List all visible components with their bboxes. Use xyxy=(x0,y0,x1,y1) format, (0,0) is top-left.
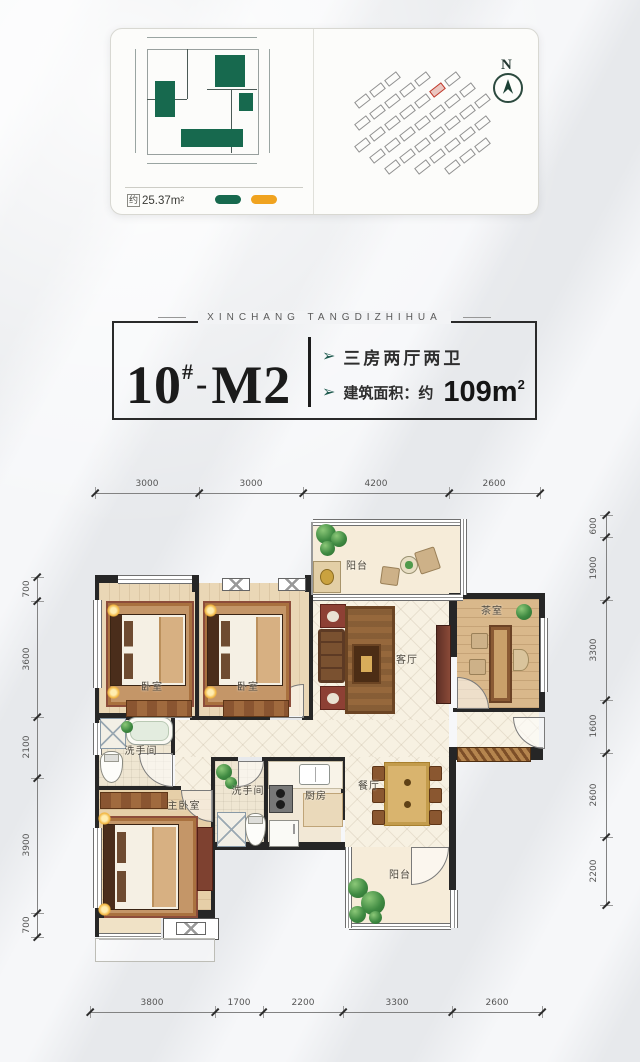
site-building xyxy=(354,137,371,153)
arrow-icon: ➢ xyxy=(322,385,335,401)
bench xyxy=(197,827,213,891)
label-bedroom-1: 卧室 xyxy=(141,683,163,693)
window xyxy=(93,600,102,688)
site-building xyxy=(459,148,476,164)
label-living: 客厅 xyxy=(396,656,418,666)
side-table xyxy=(320,604,346,628)
site-building xyxy=(399,126,416,142)
dim-left-3: 3900 xyxy=(22,834,32,857)
area-number: 109m xyxy=(443,376,517,408)
site-building xyxy=(414,159,431,175)
site-building xyxy=(384,159,401,175)
unit-dash: - xyxy=(196,366,208,403)
wall xyxy=(215,757,238,761)
tv-cabinet xyxy=(436,625,451,704)
site-building-highlighted xyxy=(429,82,446,98)
unit-title: 10#-M2 xyxy=(126,337,291,420)
dim-line-bottom xyxy=(90,1012,542,1013)
site-building xyxy=(459,126,476,142)
wardrobe xyxy=(126,700,192,717)
arrow-icon: ➢ xyxy=(322,349,335,365)
plant xyxy=(320,541,335,556)
mini-wall xyxy=(207,89,257,90)
dim-bottom-4: 2600 xyxy=(486,998,509,1008)
dim-top-0: 3000 xyxy=(136,479,159,489)
dim-top-1: 3000 xyxy=(240,479,263,489)
window xyxy=(460,519,467,595)
bathtub xyxy=(126,717,173,745)
site-building xyxy=(414,71,431,87)
site-building xyxy=(414,93,431,109)
entry-beam xyxy=(457,747,531,762)
mini-plan-unit-block xyxy=(239,93,253,111)
dining-chair xyxy=(429,766,442,781)
site-building xyxy=(429,104,446,120)
site-building xyxy=(414,115,431,131)
chair xyxy=(469,659,486,675)
stove xyxy=(269,785,293,813)
dim-bottom-1: 1700 xyxy=(228,998,251,1008)
dim-right-1: 1900 xyxy=(589,557,599,580)
site-building xyxy=(369,126,386,142)
card-divider xyxy=(313,29,314,214)
dim-right-2: 3300 xyxy=(589,639,599,662)
fridge xyxy=(269,820,299,847)
mini-dim-line xyxy=(147,163,257,164)
lamp xyxy=(204,686,217,699)
lamp xyxy=(98,812,111,825)
feature-rooms: 三房两厅两卫 xyxy=(343,344,463,369)
unit-model: M2 xyxy=(211,355,291,415)
window xyxy=(349,923,451,930)
lamp xyxy=(98,903,111,916)
brand-text: XINCHANG TANGDIZHIHUA xyxy=(198,311,451,324)
ac-platform xyxy=(95,938,215,962)
site-building xyxy=(429,126,446,142)
label-balcony-bottom: 阳台 xyxy=(389,871,411,881)
site-building xyxy=(444,71,461,87)
mini-dim-line xyxy=(147,37,257,38)
site-building xyxy=(474,93,491,109)
lamp xyxy=(107,686,120,699)
site-building xyxy=(354,93,371,109)
legend-pill-green xyxy=(215,195,241,204)
plant xyxy=(369,911,382,924)
dining-chair xyxy=(372,766,385,781)
feature-area-row: ➢ 建筑面积：约 109m2 xyxy=(322,378,525,407)
bed-master xyxy=(103,824,179,910)
compass-circle xyxy=(493,73,523,103)
coffee-table xyxy=(352,644,381,684)
brand-row: XINCHANG TANGDIZHIHUA xyxy=(112,311,537,324)
wall xyxy=(449,760,456,890)
mini-plan-unit-block xyxy=(215,55,245,87)
plant xyxy=(516,604,532,620)
site-building xyxy=(399,104,416,120)
floor-hallway xyxy=(175,720,449,757)
mini-plan-unit-block xyxy=(155,81,175,117)
key-card: 约25.37m² N xyxy=(110,28,539,215)
laundry-unit xyxy=(313,561,341,593)
area-sup: 2 xyxy=(518,377,525,392)
feature-area-value: 109m2 xyxy=(443,378,524,407)
legend-pill-orange xyxy=(251,195,277,204)
chair xyxy=(513,649,529,671)
window xyxy=(93,828,102,908)
wardrobe xyxy=(100,792,168,809)
feature-rooms-row: ➢ 三房两厅两卫 xyxy=(322,344,463,369)
lamp xyxy=(204,604,217,617)
dim-bottom-2: 2200 xyxy=(292,998,315,1008)
window xyxy=(313,594,463,601)
dim-line-right xyxy=(606,515,607,905)
wall xyxy=(95,575,118,583)
dining-chair xyxy=(429,810,442,825)
site-building xyxy=(444,137,461,153)
brand-dash xyxy=(158,317,186,318)
shower xyxy=(217,812,246,847)
legend-separator xyxy=(125,187,303,188)
window xyxy=(118,575,192,584)
dim-left-1: 3600 xyxy=(22,648,32,671)
site-building xyxy=(474,115,491,131)
wardrobe xyxy=(223,700,289,717)
key-area-note: 约25.37m² xyxy=(127,191,184,209)
dim-right-4: 2600 xyxy=(589,784,599,807)
site-building xyxy=(444,93,461,109)
approx-box: 约 xyxy=(127,194,140,207)
key-area-value: 25.37m² xyxy=(142,195,184,207)
site-building xyxy=(384,115,401,131)
dim-bottom-3: 3300 xyxy=(386,998,409,1008)
dim-left-2: 2100 xyxy=(22,736,32,759)
mini-wall xyxy=(187,49,188,99)
site-building xyxy=(384,93,401,109)
closet-symbol xyxy=(222,578,250,591)
dim-left-0: 700 xyxy=(22,580,32,597)
site-building xyxy=(384,71,401,87)
plant xyxy=(121,721,133,733)
poster-page: 约25.37m² N XINCHANG TANGDIZHIHUA 10#-M2 … xyxy=(0,0,640,1062)
site-building xyxy=(354,115,371,131)
sofa xyxy=(318,629,345,683)
window xyxy=(450,890,458,928)
wall xyxy=(195,583,199,716)
north-arrow-icon xyxy=(500,78,516,96)
tea-desk xyxy=(489,625,512,703)
lamp xyxy=(107,604,120,617)
dim-line-top xyxy=(95,493,540,494)
chair xyxy=(380,566,400,586)
mini-dim-line xyxy=(269,49,270,153)
bed-bedroom-2 xyxy=(207,614,283,686)
site-building xyxy=(474,137,491,153)
label-balcony-top: 阳台 xyxy=(346,562,368,572)
closet-symbol xyxy=(278,578,306,591)
plant xyxy=(349,906,366,923)
kitchen-sink xyxy=(299,764,330,785)
dim-line-left xyxy=(37,577,38,937)
feature-area-prefix: 建筑面积：约 xyxy=(343,382,433,403)
window xyxy=(540,618,548,692)
label-kitchen: 厨房 xyxy=(305,792,327,802)
closet-symbol xyxy=(176,922,206,935)
label-tea-room: 茶室 xyxy=(481,607,503,617)
label-dining: 餐厅 xyxy=(358,782,380,792)
dim-top-2: 4200 xyxy=(365,479,388,489)
label-bedroom-2: 卧室 xyxy=(237,683,259,693)
dining-chair xyxy=(372,810,385,825)
label-bath-2: 洗手间 xyxy=(232,787,265,797)
dim-right-3: 1600 xyxy=(589,715,599,738)
wall xyxy=(529,747,543,760)
mini-dim-line xyxy=(135,49,136,153)
title-divider xyxy=(308,337,311,407)
site-building xyxy=(444,159,461,175)
dining-table xyxy=(384,762,430,826)
label-bath-1: 洗手间 xyxy=(125,747,158,757)
wall xyxy=(449,747,457,760)
dining-chair xyxy=(429,788,442,803)
site-building xyxy=(369,104,386,120)
dim-right-0: 600 xyxy=(589,517,599,534)
dim-bottom-0: 3800 xyxy=(141,998,164,1008)
mini-plan-unit-block xyxy=(181,129,243,147)
bed-bedroom-1 xyxy=(110,614,186,686)
unit-hash: # xyxy=(182,359,193,384)
site-building xyxy=(399,148,416,164)
site-building xyxy=(399,82,416,98)
site-building xyxy=(369,148,386,164)
site-building xyxy=(444,115,461,131)
chair xyxy=(471,633,488,649)
brand-dash xyxy=(463,317,491,318)
site-building xyxy=(369,82,386,98)
dim-top-3: 2600 xyxy=(483,479,506,489)
dim-right-5: 2200 xyxy=(589,860,599,883)
site-building xyxy=(459,104,476,120)
dim-left-4: 700 xyxy=(22,916,32,933)
unit-number: 10 xyxy=(126,355,182,415)
window xyxy=(313,519,463,526)
label-master: 主卧室 xyxy=(168,802,201,812)
compass-n-label: N xyxy=(501,57,512,74)
site-building xyxy=(459,82,476,98)
site-building xyxy=(414,137,431,153)
side-table xyxy=(320,686,346,710)
site-building xyxy=(429,148,446,164)
site-building xyxy=(384,137,401,153)
compass: N xyxy=(493,59,523,107)
